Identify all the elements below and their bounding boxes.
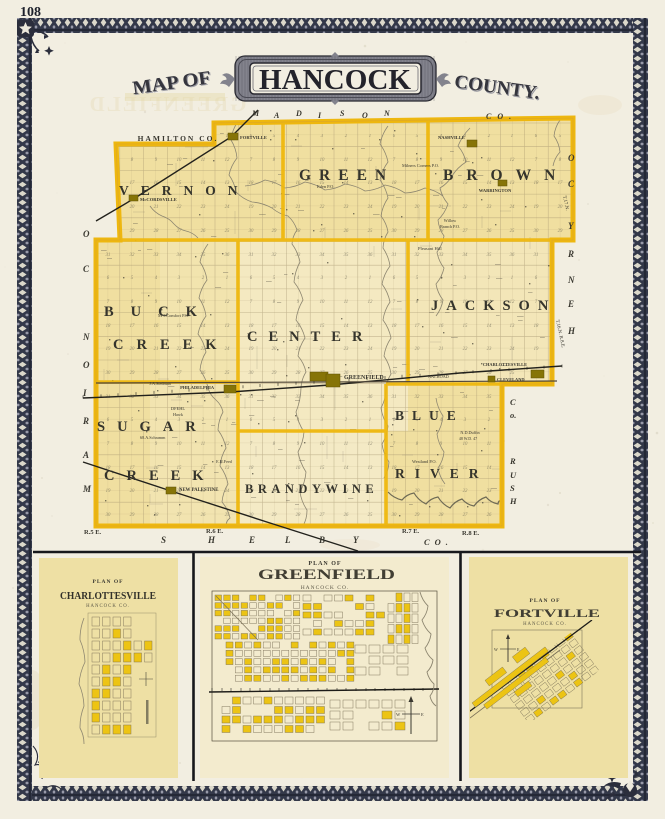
svg-text:21: 21 — [154, 205, 159, 210]
svg-text:I: I — [82, 388, 87, 398]
svg-text:Willow: Willow — [444, 218, 456, 223]
svg-text:34: 34 — [463, 395, 468, 400]
svg-text:30: 30 — [249, 371, 254, 376]
svg-text:C: C — [83, 264, 90, 274]
svg-text:12: 12 — [368, 158, 373, 163]
svg-text:1: 1 — [226, 276, 228, 281]
svg-text:L: L — [284, 535, 291, 545]
svg-text:35: 35 — [201, 395, 206, 400]
svg-text:14: 14 — [487, 324, 492, 329]
svg-text:18: 18 — [392, 324, 397, 329]
svg-text:BROWN: BROWN — [443, 167, 568, 184]
svg-text:19: 19 — [392, 347, 397, 352]
svg-text:S: S — [161, 535, 166, 545]
svg-text:35: 35 — [344, 253, 349, 258]
svg-text:A: A — [273, 111, 280, 120]
svg-text:14: 14 — [201, 324, 206, 329]
svg-text:CO.: CO. — [424, 537, 453, 547]
svg-text:B: B — [318, 535, 325, 545]
svg-text:33: 33 — [439, 253, 444, 258]
svg-text:FORTVILLE: FORTVILLE — [494, 606, 600, 620]
svg-text:29: 29 — [130, 371, 135, 376]
svg-text:30: 30 — [106, 371, 111, 376]
svg-text:16: 16 — [296, 466, 301, 471]
svg-text:19: 19 — [392, 205, 397, 210]
svg-text:26: 26 — [487, 229, 492, 234]
svg-text:23: 23 — [487, 489, 492, 494]
svg-text:28: 28 — [296, 371, 301, 376]
svg-text:32: 32 — [415, 253, 420, 258]
svg-text:30: 30 — [392, 371, 397, 376]
svg-text:24: 24 — [368, 205, 373, 210]
svg-text:16: 16 — [154, 324, 159, 329]
svg-text:RIVER: RIVER — [395, 466, 489, 481]
svg-text:36: 36 — [368, 253, 373, 258]
svg-text:26: 26 — [201, 229, 206, 234]
svg-text:24: 24 — [510, 347, 515, 352]
svg-text:11: 11 — [201, 158, 205, 163]
svg-text:31: 31 — [106, 253, 111, 258]
svg-text:E.H.Feed: E.H.Feed — [216, 459, 233, 464]
svg-text:18: 18 — [534, 324, 539, 329]
svg-text:28: 28 — [154, 513, 159, 518]
svg-text:15: 15 — [177, 324, 182, 329]
svg-text:25: 25 — [510, 229, 515, 234]
svg-text:68.A.Schramm: 68.A.Schramm — [140, 435, 166, 440]
svg-text:27: 27 — [463, 513, 468, 518]
svg-text:20: 20 — [558, 205, 563, 210]
svg-text:HANCOCK CO.: HANCOCK CO. — [301, 585, 350, 591]
svg-text:O: O — [568, 153, 575, 163]
svg-text:12: 12 — [225, 158, 230, 163]
svg-text:10: 10 — [320, 158, 325, 163]
svg-text:R.6 E.: R.6 E. — [206, 528, 224, 535]
svg-text:NASHVILLE: NASHVILLE — [438, 135, 465, 140]
svg-text:31: 31 — [392, 395, 397, 400]
svg-text:31: 31 — [249, 253, 254, 258]
svg-text:29: 29 — [415, 513, 420, 518]
svg-text:26: 26 — [344, 513, 349, 518]
svg-text:17: 17 — [272, 466, 277, 471]
svg-text:27: 27 — [177, 371, 182, 376]
svg-text:Branch P.O.: Branch P.O. — [440, 224, 460, 229]
svg-text:30: 30 — [249, 229, 254, 234]
svg-text:16: 16 — [439, 324, 444, 329]
svg-text:11: 11 — [487, 158, 491, 163]
svg-text:108: 108 — [20, 5, 41, 20]
svg-text:34: 34 — [320, 253, 325, 258]
svg-text:12: 12 — [368, 300, 373, 305]
svg-text:26: 26 — [201, 513, 206, 518]
svg-text:W: W — [494, 647, 498, 652]
svg-text:23: 23 — [344, 205, 349, 210]
svg-text:C: C — [510, 397, 516, 407]
svg-text:13: 13 — [510, 324, 515, 329]
svg-text:O: O — [83, 229, 90, 239]
svg-text:34: 34 — [177, 253, 182, 258]
svg-text:WARRINGTON: WARRINGTON — [479, 188, 512, 193]
svg-text:20: 20 — [415, 489, 420, 494]
svg-text:32: 32 — [415, 395, 420, 400]
svg-text:CREEK: CREEK — [104, 468, 216, 484]
svg-text:35: 35 — [344, 395, 349, 400]
svg-text:19: 19 — [534, 205, 539, 210]
svg-text:Eden P.O.: Eden P.O. — [317, 184, 334, 189]
svg-text:22: 22 — [463, 489, 468, 494]
svg-text:DFEHL: DFEHL — [171, 406, 185, 411]
svg-text:26: 26 — [487, 513, 492, 518]
svg-text:27: 27 — [320, 229, 325, 234]
svg-text:35: 35 — [487, 253, 492, 258]
svg-text:11: 11 — [201, 442, 205, 447]
svg-text:R: R — [509, 456, 516, 466]
svg-text:19: 19 — [534, 347, 539, 352]
svg-text:A: A — [82, 450, 89, 460]
svg-text:27: 27 — [463, 371, 468, 376]
svg-text:o.: o. — [510, 410, 516, 420]
svg-text:29: 29 — [415, 229, 420, 234]
svg-text:20: 20 — [272, 347, 277, 352]
svg-text:19: 19 — [106, 347, 111, 352]
svg-text:10: 10 — [463, 442, 468, 447]
svg-text:27: 27 — [177, 513, 182, 518]
svg-text:11: 11 — [344, 158, 348, 163]
svg-text:Hawk: Hawk — [173, 412, 184, 417]
svg-text:33: 33 — [154, 253, 159, 258]
svg-text:27: 27 — [463, 229, 468, 234]
svg-text:30: 30 — [534, 229, 539, 234]
svg-text:34: 34 — [463, 253, 468, 258]
svg-text:NEW PALESTINE: NEW PALESTINE — [179, 488, 218, 493]
svg-text:11: 11 — [344, 300, 348, 305]
svg-text:GREENFIELD: GREENFIELD — [344, 375, 384, 381]
svg-text:17: 17 — [415, 324, 420, 329]
svg-text:23: 23 — [344, 347, 349, 352]
svg-text:20: 20 — [415, 347, 420, 352]
svg-text:20: 20 — [130, 489, 135, 494]
svg-text:C: C — [568, 179, 575, 189]
svg-text:24: 24 — [225, 205, 230, 210]
svg-text:10: 10 — [320, 300, 325, 305]
svg-text:28: 28 — [439, 513, 444, 518]
svg-text:29: 29 — [272, 229, 277, 234]
svg-text:J.A.Stedman: J.A.Stedman — [149, 381, 171, 386]
svg-text:29: 29 — [130, 513, 135, 518]
svg-text:25: 25 — [368, 229, 373, 234]
svg-text:30: 30 — [392, 229, 397, 234]
svg-text:36: 36 — [225, 253, 230, 258]
svg-text:Westland P.O.: Westland P.O. — [412, 459, 437, 464]
svg-text:21: 21 — [154, 489, 159, 494]
svg-text:S: S — [340, 109, 345, 118]
svg-text:25: 25 — [225, 229, 230, 234]
svg-text:JACKSON: JACKSON — [431, 298, 556, 314]
svg-text:13: 13 — [225, 466, 230, 471]
svg-text:35: 35 — [487, 395, 492, 400]
svg-text:29: 29 — [558, 229, 563, 234]
svg-text:M: M — [251, 109, 260, 118]
svg-text:22: 22 — [463, 347, 468, 352]
svg-text:E: E — [248, 535, 255, 545]
svg-text:19: 19 — [249, 205, 254, 210]
svg-text:34: 34 — [177, 395, 182, 400]
svg-text:18: 18 — [249, 466, 254, 471]
svg-text:GREEN: GREEN — [299, 167, 394, 184]
svg-text:15: 15 — [320, 466, 325, 471]
svg-text:O: O — [83, 360, 90, 370]
svg-text:36: 36 — [225, 395, 230, 400]
svg-text:20: 20 — [130, 205, 135, 210]
svg-text:23: 23 — [201, 205, 206, 210]
svg-text:32: 32 — [272, 253, 277, 258]
svg-text:48 W.D. 47: 48 W.D. 47 — [459, 436, 477, 441]
svg-text:PLAN OF: PLAN OF — [93, 579, 124, 585]
svg-text:31: 31 — [534, 253, 539, 258]
svg-text:1: 1 — [369, 134, 371, 139]
svg-text:BRANDYWINE: BRANDYWINE — [245, 482, 378, 496]
svg-text:21: 21 — [439, 489, 444, 494]
svg-text:HANCOCK CO.: HANCOCK CO. — [86, 604, 130, 609]
svg-text:14: 14 — [344, 466, 349, 471]
svg-text:R: R — [82, 416, 89, 426]
svg-text:26: 26 — [344, 229, 349, 234]
svg-text:NAT.ROAD: NAT.ROAD — [428, 374, 449, 379]
svg-text:33: 33 — [439, 395, 444, 400]
svg-text:BUCK: BUCK — [104, 304, 214, 320]
svg-text:30: 30 — [392, 513, 397, 518]
svg-text:11: 11 — [487, 442, 491, 447]
svg-text:H: H — [509, 496, 517, 506]
svg-text:HAMILTON CO.: HAMILTON CO. — [138, 134, 219, 143]
svg-text:19: 19 — [106, 489, 111, 494]
svg-text:CLEVELAND: CLEVELAND — [497, 377, 525, 382]
svg-text:12: 12 — [368, 442, 373, 447]
svg-text:29: 29 — [130, 229, 135, 234]
svg-text:32: 32 — [130, 253, 135, 258]
svg-text:R.7 E.: R.7 E. — [402, 528, 420, 535]
svg-text:1: 1 — [369, 276, 371, 281]
svg-text:21: 21 — [296, 205, 301, 210]
svg-text:E: E — [567, 299, 574, 309]
svg-text:10: 10 — [320, 442, 325, 447]
svg-text:CENTER: CENTER — [247, 329, 373, 345]
svg-text:22: 22 — [320, 205, 325, 210]
svg-text:11: 11 — [344, 442, 348, 447]
svg-text:N.D.Duffin: N.D.Duffin — [460, 430, 480, 435]
svg-text:1: 1 — [226, 418, 228, 423]
svg-text:1: 1 — [511, 276, 513, 281]
svg-text:29: 29 — [272, 513, 277, 518]
svg-text:CREEK: CREEK — [113, 337, 230, 353]
svg-text:M: M — [82, 484, 92, 494]
svg-text:S: S — [510, 483, 515, 493]
svg-text:25: 25 — [368, 513, 373, 518]
svg-text:21: 21 — [439, 347, 444, 352]
svg-text:23: 23 — [487, 205, 492, 210]
svg-text:17: 17 — [130, 324, 135, 329]
svg-text:21: 21 — [439, 205, 444, 210]
svg-text:R: R — [567, 249, 574, 259]
svg-text:23: 23 — [487, 347, 492, 352]
svg-text:36: 36 — [368, 395, 373, 400]
svg-text:PHILADELPHIA: PHILADELPHIA — [180, 385, 215, 390]
svg-text:24: 24 — [368, 347, 373, 352]
svg-text:20: 20 — [415, 205, 420, 210]
svg-text:24: 24 — [510, 205, 515, 210]
svg-text:CO.: CO. — [486, 112, 517, 121]
svg-text:HANCOCK CO.: HANCOCK CO. — [523, 622, 567, 627]
svg-text:27: 27 — [320, 513, 325, 518]
svg-text:BLUE: BLUE — [395, 408, 464, 423]
svg-text:PLAN OF: PLAN OF — [530, 598, 561, 604]
svg-text:HANCOCK: HANCOCK — [259, 65, 411, 96]
svg-text:12: 12 — [510, 158, 515, 163]
svg-text:29: 29 — [415, 371, 420, 376]
svg-text:13: 13 — [368, 466, 373, 471]
svg-text:CHARLOTTESVILLE: CHARLOTTESVILLE — [60, 591, 156, 602]
svg-text:U: U — [510, 470, 517, 480]
svg-text:31: 31 — [249, 395, 254, 400]
svg-text:Milners Corners P.O.: Milners Corners P.O. — [402, 163, 439, 168]
svg-text:SUGAR: SUGAR — [97, 419, 208, 435]
svg-text:CHARLOTTESVILLE: CHARLOTTESVILLE — [483, 362, 527, 367]
svg-text:28: 28 — [154, 229, 159, 234]
svg-text:28: 28 — [296, 513, 301, 518]
svg-text:10: 10 — [177, 442, 182, 447]
svg-text:22: 22 — [177, 205, 182, 210]
svg-text:17: 17 — [415, 181, 420, 186]
svg-text:25: 25 — [225, 371, 230, 376]
svg-text:18: 18 — [106, 324, 111, 329]
svg-text:E: E — [421, 712, 424, 717]
svg-text:19: 19 — [249, 347, 254, 352]
svg-text:22: 22 — [320, 347, 325, 352]
svg-text:20: 20 — [272, 205, 277, 210]
svg-text:34: 34 — [320, 395, 325, 400]
svg-text:10: 10 — [177, 158, 182, 163]
svg-text:R.8 E.: R.8 E. — [462, 530, 480, 537]
svg-text:1: 1 — [369, 418, 371, 423]
svg-text:H: H — [567, 326, 576, 336]
svg-text:15: 15 — [463, 324, 468, 329]
svg-text:R.5 E.: R.5 E. — [84, 529, 102, 536]
svg-text:VERNON: VERNON — [119, 183, 250, 198]
svg-text:28: 28 — [154, 371, 159, 376]
svg-text:13: 13 — [225, 324, 230, 329]
svg-text:29: 29 — [272, 371, 277, 376]
svg-text:31: 31 — [392, 253, 397, 258]
svg-text:36: 36 — [510, 253, 515, 258]
svg-text:22: 22 — [463, 205, 468, 210]
svg-text:D: D — [295, 109, 302, 118]
svg-text:Pleasant Hill: Pleasant Hill — [418, 246, 442, 251]
svg-text:12: 12 — [225, 300, 230, 305]
svg-text:32: 32 — [272, 395, 277, 400]
svg-text:N: N — [567, 275, 575, 285]
svg-text:19: 19 — [392, 489, 397, 494]
svg-text:30: 30 — [106, 513, 111, 518]
svg-text:O: O — [362, 111, 368, 120]
svg-text:H: H — [207, 535, 216, 545]
svg-text:FORTVILLE: FORTVILLE — [240, 135, 267, 140]
svg-text:N: N — [82, 332, 90, 342]
svg-text:1: 1 — [511, 134, 513, 139]
svg-text:GREENFIELD: GREENFIELD — [258, 567, 395, 583]
svg-text:25: 25 — [510, 371, 515, 376]
